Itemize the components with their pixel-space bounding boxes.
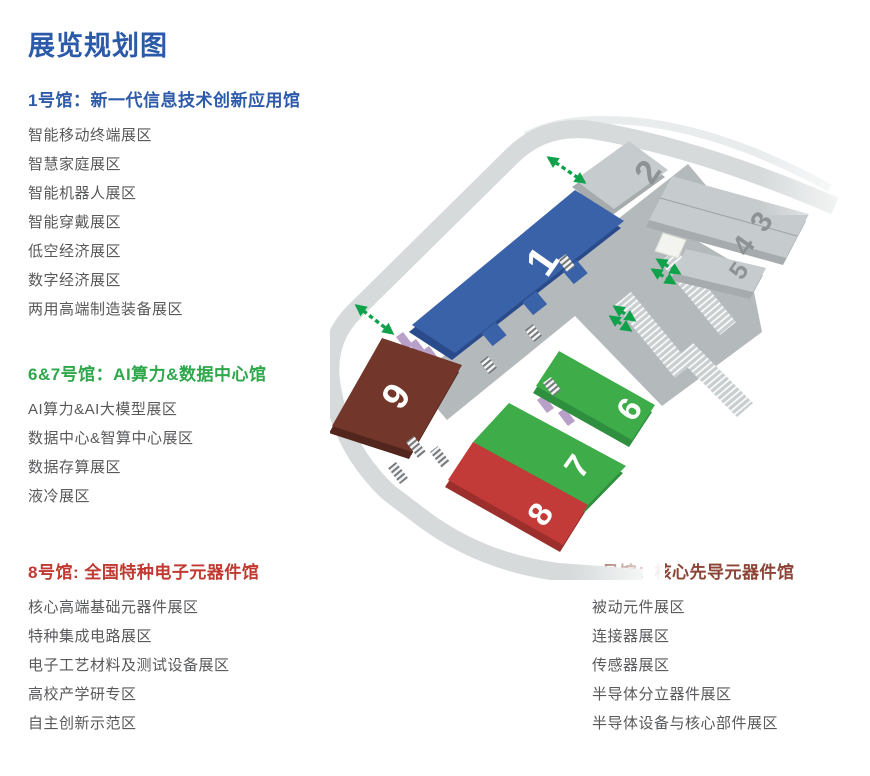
section-hall-1-items: 智能移动终端展区 智慧家庭展区 智能机器人展区 智能穿戴展区 低空经济展区 数字… xyxy=(28,121,358,324)
list-item: AI算力&AI大模型展区 xyxy=(28,395,358,424)
list-item: 被动元件展区 xyxy=(592,593,870,622)
list-item: 特种集成电路展区 xyxy=(28,622,358,651)
road-fade xyxy=(570,530,665,580)
list-item: 智能机器人展区 xyxy=(28,179,358,208)
site-map: 1 2 3 4 5 6 7 8 9 xyxy=(330,100,870,580)
list-item: 自主创新示范区 xyxy=(28,709,358,738)
list-item: 数据存算展区 xyxy=(28,453,358,482)
page-title: 展览规划图 xyxy=(28,24,168,63)
section-hall-6-7-heading: 6&7号馆：AI算力&数据中心馆 xyxy=(28,360,358,385)
section-hall-8-items: 核心高端基础元器件展区 特种集成电路展区 电子工艺材料及测试设备展区 高校产学研… xyxy=(28,593,358,738)
section-hall-8: 8号馆: 全国特种电子元器件馆 核心高端基础元器件展区 特种集成电路展区 电子工… xyxy=(28,558,358,738)
list-item: 智能移动终端展区 xyxy=(28,121,358,150)
site-map-svg: 1 2 3 4 5 6 7 8 9 xyxy=(330,100,870,580)
list-item: 智能穿戴展区 xyxy=(28,208,358,237)
section-hall-9-items: 被动元件展区 连接器展区 传感器展区 半导体分立器件展区 半导体设备与核心部件展… xyxy=(592,593,870,738)
section-hall-8-heading: 8号馆: 全国特种电子元器件馆 xyxy=(28,558,358,583)
road-fade xyxy=(760,100,870,215)
list-item: 连接器展区 xyxy=(592,622,870,651)
section-hall-6-7: 6&7号馆：AI算力&数据中心馆 AI算力&AI大模型展区 数据中心&智算中心展… xyxy=(28,360,358,511)
list-item: 两用高端制造装备展区 xyxy=(28,295,358,324)
list-item: 智慧家庭展区 xyxy=(28,150,358,179)
section-hall-6-7-items: AI算力&AI大模型展区 数据中心&智算中心展区 数据存算展区 液冷展区 xyxy=(28,395,358,511)
list-item: 核心高端基础元器件展区 xyxy=(28,593,358,622)
list-item: 数据中心&智算中心展区 xyxy=(28,424,358,453)
section-hall-1-heading: 1号馆：新一代信息技术创新应用馆 xyxy=(28,86,358,111)
section-hall-1: 1号馆：新一代信息技术创新应用馆 智能移动终端展区 智慧家庭展区 智能机器人展区… xyxy=(28,86,358,324)
section-hall-9: 9号馆：核心先导元器件馆 被动元件展区 连接器展区 传感器展区 半导体分立器件展… xyxy=(592,558,870,738)
list-item: 电子工艺材料及测试设备展区 xyxy=(28,651,358,680)
list-item: 半导体分立器件展区 xyxy=(592,680,870,709)
list-item: 传感器展区 xyxy=(592,651,870,680)
list-item: 低空经济展区 xyxy=(28,237,358,266)
list-item: 高校产学研专区 xyxy=(28,680,358,709)
list-item: 数字经济展区 xyxy=(28,266,358,295)
list-item: 液冷展区 xyxy=(28,482,358,511)
list-item: 半导体设备与核心部件展区 xyxy=(592,709,870,738)
